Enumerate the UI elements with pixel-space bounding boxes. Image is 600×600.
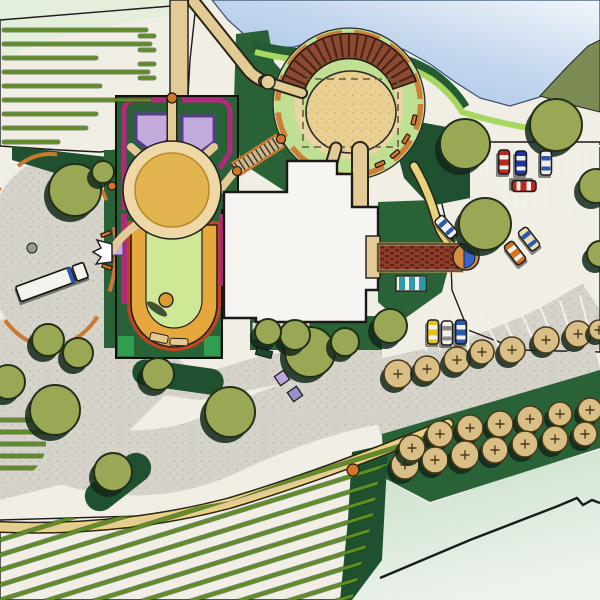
car-windshield [443,326,452,331]
garden-circle-plaza [135,153,209,227]
parked-car [496,150,510,177]
parked-car [538,151,552,178]
car-body [499,150,510,174]
olive-tree [30,385,80,435]
car-windshield [542,156,551,161]
car-rear-window [542,167,551,171]
stairs-node-lower [233,167,242,176]
car-body [516,151,527,175]
trellis-shelter [396,276,426,291]
car-body [456,320,467,344]
car-windshield [527,182,532,191]
site-plan-rendering: Hand-drawn colored-pencil site plan: win… [0,0,600,600]
site-plan-svg [0,0,600,600]
olive-tree [63,338,93,368]
olive-tree [0,365,25,399]
olive-tree [373,309,407,343]
car-rear-window [457,336,466,340]
parked-car [509,178,536,192]
pool-lawn [146,230,202,328]
car-rear-window [517,167,526,171]
olive-tree [440,119,490,169]
olive-tree [280,320,310,350]
car-windshield [500,155,509,160]
brick-entry-walk [378,244,462,271]
olive-tree [92,161,114,183]
hedge-west-strip [121,214,127,304]
lawn-patch-se [204,336,220,356]
car-body [512,181,536,192]
specimen-tree [159,293,173,307]
parked-car [513,151,527,178]
olive-tree [530,99,582,151]
stairs-node-upper [277,135,286,144]
car-windshield [429,325,438,330]
walk-north-vertical [170,0,188,96]
pool-bench-2 [170,338,188,346]
car-body [428,320,439,344]
path-node-north [167,93,177,103]
car-body [541,151,552,175]
olive-tree [331,328,359,356]
car-rear-window [500,166,509,170]
olive-tree [94,453,132,491]
car-rear-window [429,336,438,340]
car-windshield [457,325,466,330]
path-node-west [108,182,116,190]
path-junction-knob [261,75,275,89]
olive-tree [255,319,281,345]
parked-car [453,320,467,347]
olive-tree [142,358,174,390]
parked-car [439,321,453,348]
olive-tree [205,387,255,437]
car-rear-window [517,182,521,191]
car-body [442,321,453,345]
olive-tree [459,198,511,250]
parked-car [425,320,439,347]
path-node-orchard [347,464,359,476]
court-drain [27,243,37,253]
car-windshield [517,156,526,161]
stage-circle [306,71,396,153]
olive-tree [32,324,64,356]
lawn-patch-sw [118,336,134,356]
car-rear-window [443,337,452,341]
